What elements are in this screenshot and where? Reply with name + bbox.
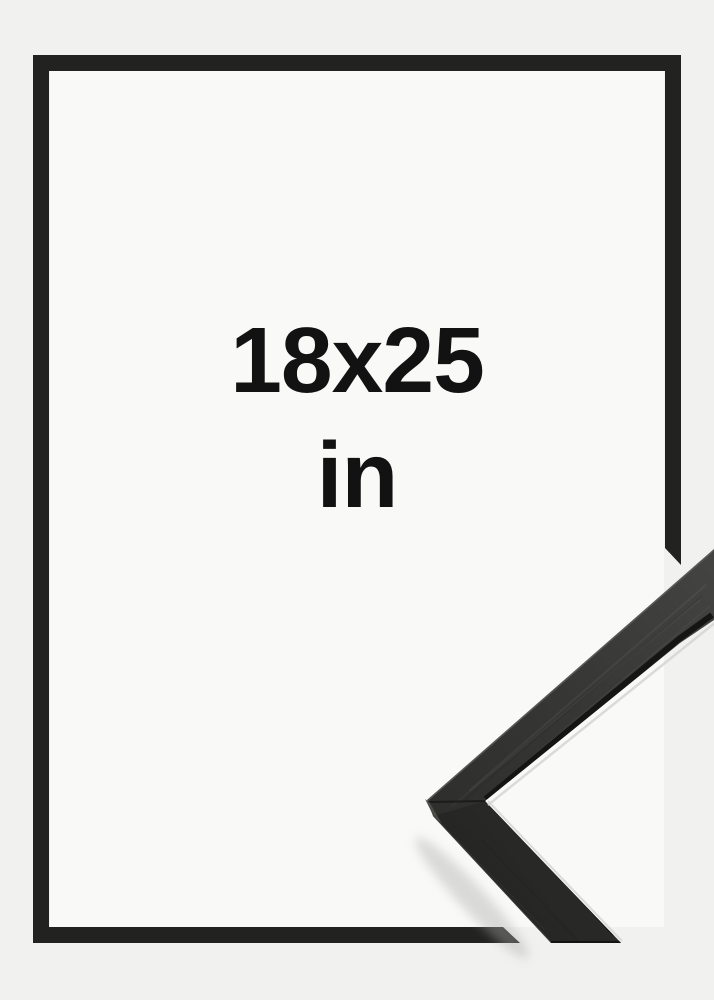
- size-unit-text: in: [0, 418, 714, 533]
- mitre-seam: [429, 801, 486, 802]
- size-label: 18x25 in: [0, 303, 714, 533]
- frame-size-product-image: 18x25 in: [0, 0, 714, 1000]
- frame-outline-bottom: [33, 927, 520, 943]
- size-dimensions-text: 18x25: [0, 303, 714, 418]
- frame-outline-top: [33, 55, 681, 71]
